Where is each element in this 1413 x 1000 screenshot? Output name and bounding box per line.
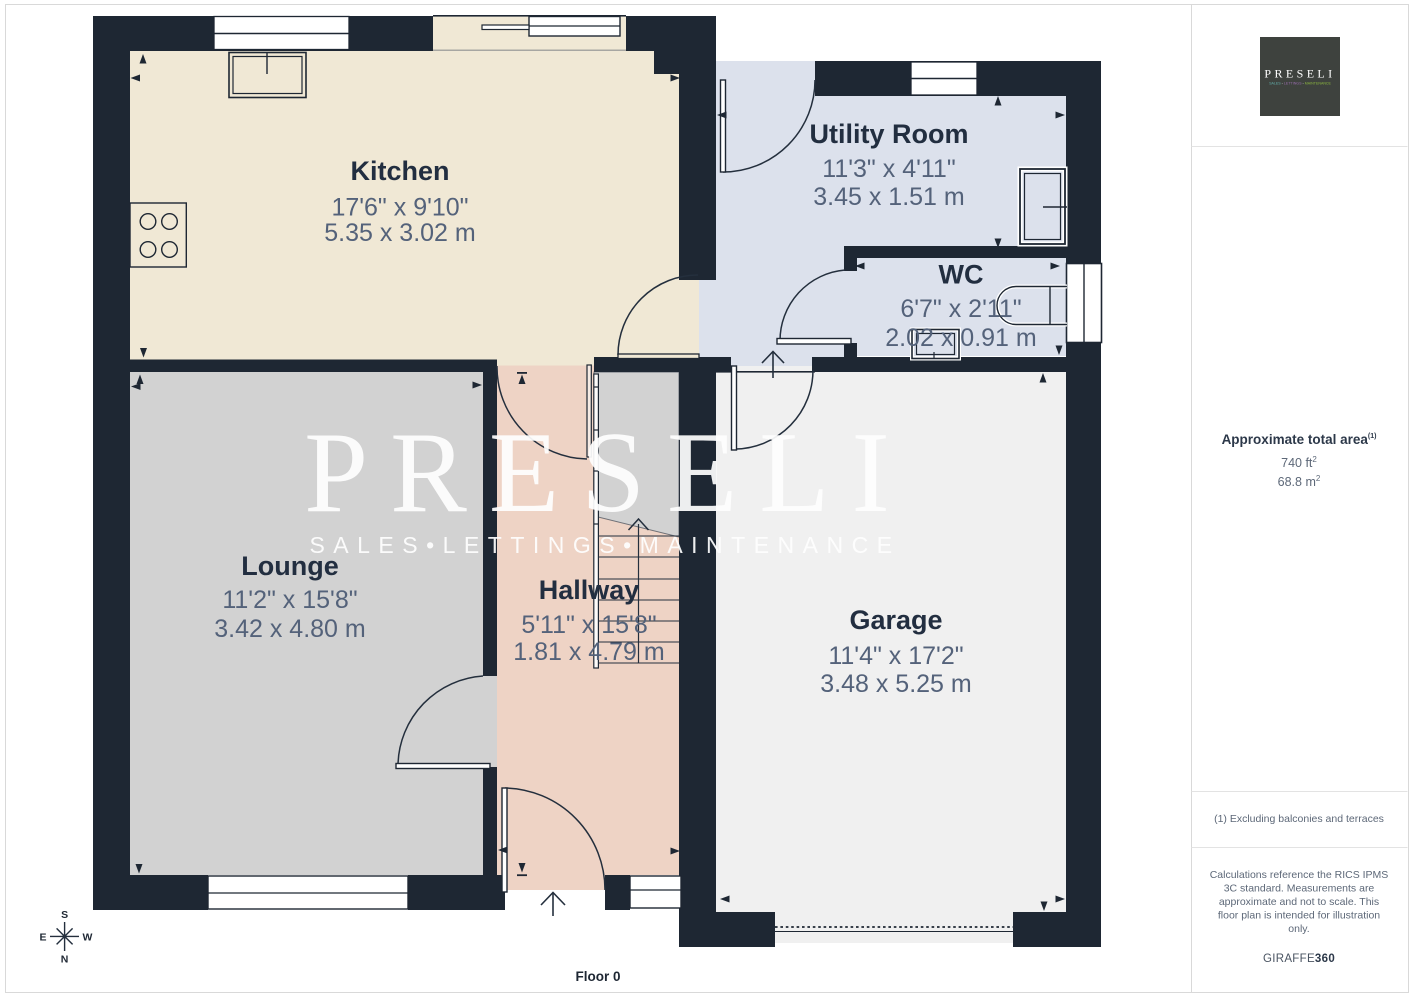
svg-text:Garage: Garage [849,605,942,635]
svg-text:W: W [83,932,93,944]
svg-text:11'4" x 17'2": 11'4" x 17'2" [828,642,963,670]
svg-text:11'2" x 15'8": 11'2" x 15'8" [222,586,357,614]
svg-text:1.81 x 4.79 m: 1.81 x 4.79 m [513,638,664,666]
svg-text:Hallway: Hallway [539,575,640,605]
svg-text:5.35 x 3.02 m: 5.35 x 3.02 m [324,219,475,247]
svg-text:740 ft2: 740 ft2 [1281,455,1317,470]
svg-text:6'7" x 2'11": 6'7" x 2'11" [900,295,1021,323]
svg-text:Lounge: Lounge [241,551,338,581]
svg-text:only.: only. [1288,923,1309,935]
svg-text:GIRAFFE360: GIRAFFE360 [1263,953,1335,965]
svg-text:SALES • LETTINGS • MAINTENANCE: SALES • LETTINGS • MAINTENANCE [1269,82,1331,86]
svg-text:Approximate total area(1): Approximate total area(1) [1222,432,1377,447]
svg-text:3.48 x 5.25 m: 3.48 x 5.25 m [820,670,971,698]
svg-text:floor plan is intended for ill: floor plan is intended for illustration [1218,910,1380,922]
svg-text:N: N [61,954,69,966]
svg-text:E: E [39,932,46,944]
svg-text:68.8 m2: 68.8 m2 [1278,474,1321,489]
svg-text:S: S [61,909,68,921]
svg-text:WC: WC [939,260,984,290]
svg-text:PRESELI: PRESELI [304,409,912,536]
svg-text:SALES•LETTINGS•MAINTENANCE: SALES•LETTINGS•MAINTENANCE [309,532,900,558]
svg-text:Floor 0: Floor 0 [575,969,620,984]
svg-text:approximate and not to scale.: approximate and not to scale. This [1219,896,1379,908]
svg-text:Calculations reference the RIC: Calculations reference the RICS IPMS [1210,869,1389,881]
svg-text:3C standard. Measurements are: 3C standard. Measurements are [1224,883,1375,895]
svg-text:2.02 x 0.91 m: 2.02 x 0.91 m [885,324,1036,352]
svg-text:3.42 x 4.80 m: 3.42 x 4.80 m [214,615,365,643]
svg-text:Kitchen: Kitchen [350,156,449,186]
svg-text:PRESELI: PRESELI [1264,67,1335,81]
svg-text:3.45 x 1.51 m: 3.45 x 1.51 m [813,183,964,211]
svg-text:17'6" x 9'10": 17'6" x 9'10" [331,194,468,222]
svg-text:5'11" x 15'8": 5'11" x 15'8" [521,611,656,639]
svg-text:(1) Excluding balconies and te: (1) Excluding balconies and terraces [1214,813,1384,825]
svg-text:11'3" x 4'11": 11'3" x 4'11" [822,155,955,183]
svg-text:Utility Room: Utility Room [810,119,969,149]
